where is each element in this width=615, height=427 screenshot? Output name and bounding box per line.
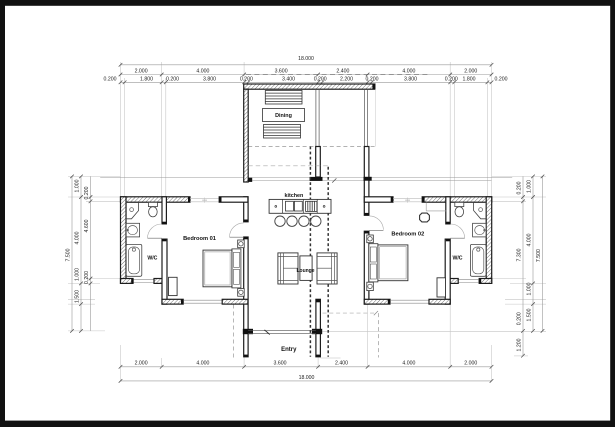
svg-text:18.000: 18.000 <box>298 56 314 62</box>
svg-text:Lounge: Lounge <box>296 268 314 274</box>
svg-text:2.400: 2.400 <box>336 69 349 75</box>
svg-text:0.200: 0.200 <box>104 77 117 83</box>
svg-text:4.000: 4.000 <box>196 361 209 367</box>
svg-text:Dining: Dining <box>275 113 292 119</box>
svg-text:7.500: 7.500 <box>536 249 542 262</box>
svg-text:Bedroom 01: Bedroom 01 <box>183 236 216 242</box>
svg-text:3.800: 3.800 <box>404 77 417 83</box>
svg-text:W/C: W/C <box>452 256 462 262</box>
svg-text:4.600: 4.600 <box>84 219 90 232</box>
svg-text:1.800: 1.800 <box>140 77 153 83</box>
svg-text:4.000: 4.000 <box>402 69 415 75</box>
svg-text:7.300: 7.300 <box>517 248 523 261</box>
svg-text:4.000: 4.000 <box>196 69 209 75</box>
svg-text:3.600: 3.600 <box>275 69 288 75</box>
svg-text:0.200: 0.200 <box>517 312 523 325</box>
svg-text:0.200: 0.200 <box>445 77 458 83</box>
svg-text:4.000: 4.000 <box>526 233 532 246</box>
svg-text:3.800: 3.800 <box>203 77 216 83</box>
svg-text:W/C: W/C <box>147 256 157 262</box>
svg-text:4.000: 4.000 <box>74 231 80 244</box>
svg-text:0.200: 0.200 <box>517 181 523 194</box>
svg-text:1.500: 1.500 <box>74 290 80 303</box>
svg-text:kitchen: kitchen <box>284 193 303 199</box>
svg-text:2.000: 2.000 <box>135 361 148 367</box>
svg-text:1.500: 1.500 <box>526 308 532 321</box>
svg-text:18.000: 18.000 <box>299 375 315 381</box>
svg-text:1.800: 1.800 <box>463 77 476 83</box>
svg-text:0.200: 0.200 <box>84 186 90 199</box>
svg-text:0.200: 0.200 <box>495 77 508 83</box>
svg-text:2.000: 2.000 <box>464 361 477 367</box>
svg-text:2.200: 2.200 <box>340 77 353 83</box>
svg-text:Entry: Entry <box>281 347 297 353</box>
svg-text:2.000: 2.000 <box>135 69 148 75</box>
svg-text:1.000: 1.000 <box>526 180 532 193</box>
svg-text:0.200: 0.200 <box>366 77 379 83</box>
svg-text:1.000: 1.000 <box>74 179 80 192</box>
svg-text:1.000: 1.000 <box>526 282 532 295</box>
svg-text:2.000: 2.000 <box>464 69 477 75</box>
svg-text:3.400: 3.400 <box>282 77 295 83</box>
svg-text:0.200: 0.200 <box>314 77 327 83</box>
svg-text:0.200: 0.200 <box>240 77 253 83</box>
svg-text:4.000: 4.000 <box>402 361 415 367</box>
svg-text:7.500: 7.500 <box>66 248 72 261</box>
svg-text:0.200: 0.200 <box>166 77 179 83</box>
svg-text:Bedroom 02: Bedroom 02 <box>391 232 424 238</box>
svg-text:3.600: 3.600 <box>274 361 287 367</box>
svg-text:1.000: 1.000 <box>74 268 80 281</box>
svg-text:0.200: 0.200 <box>84 271 90 284</box>
svg-text:1.200: 1.200 <box>517 338 523 351</box>
svg-text:2.400: 2.400 <box>335 361 348 367</box>
